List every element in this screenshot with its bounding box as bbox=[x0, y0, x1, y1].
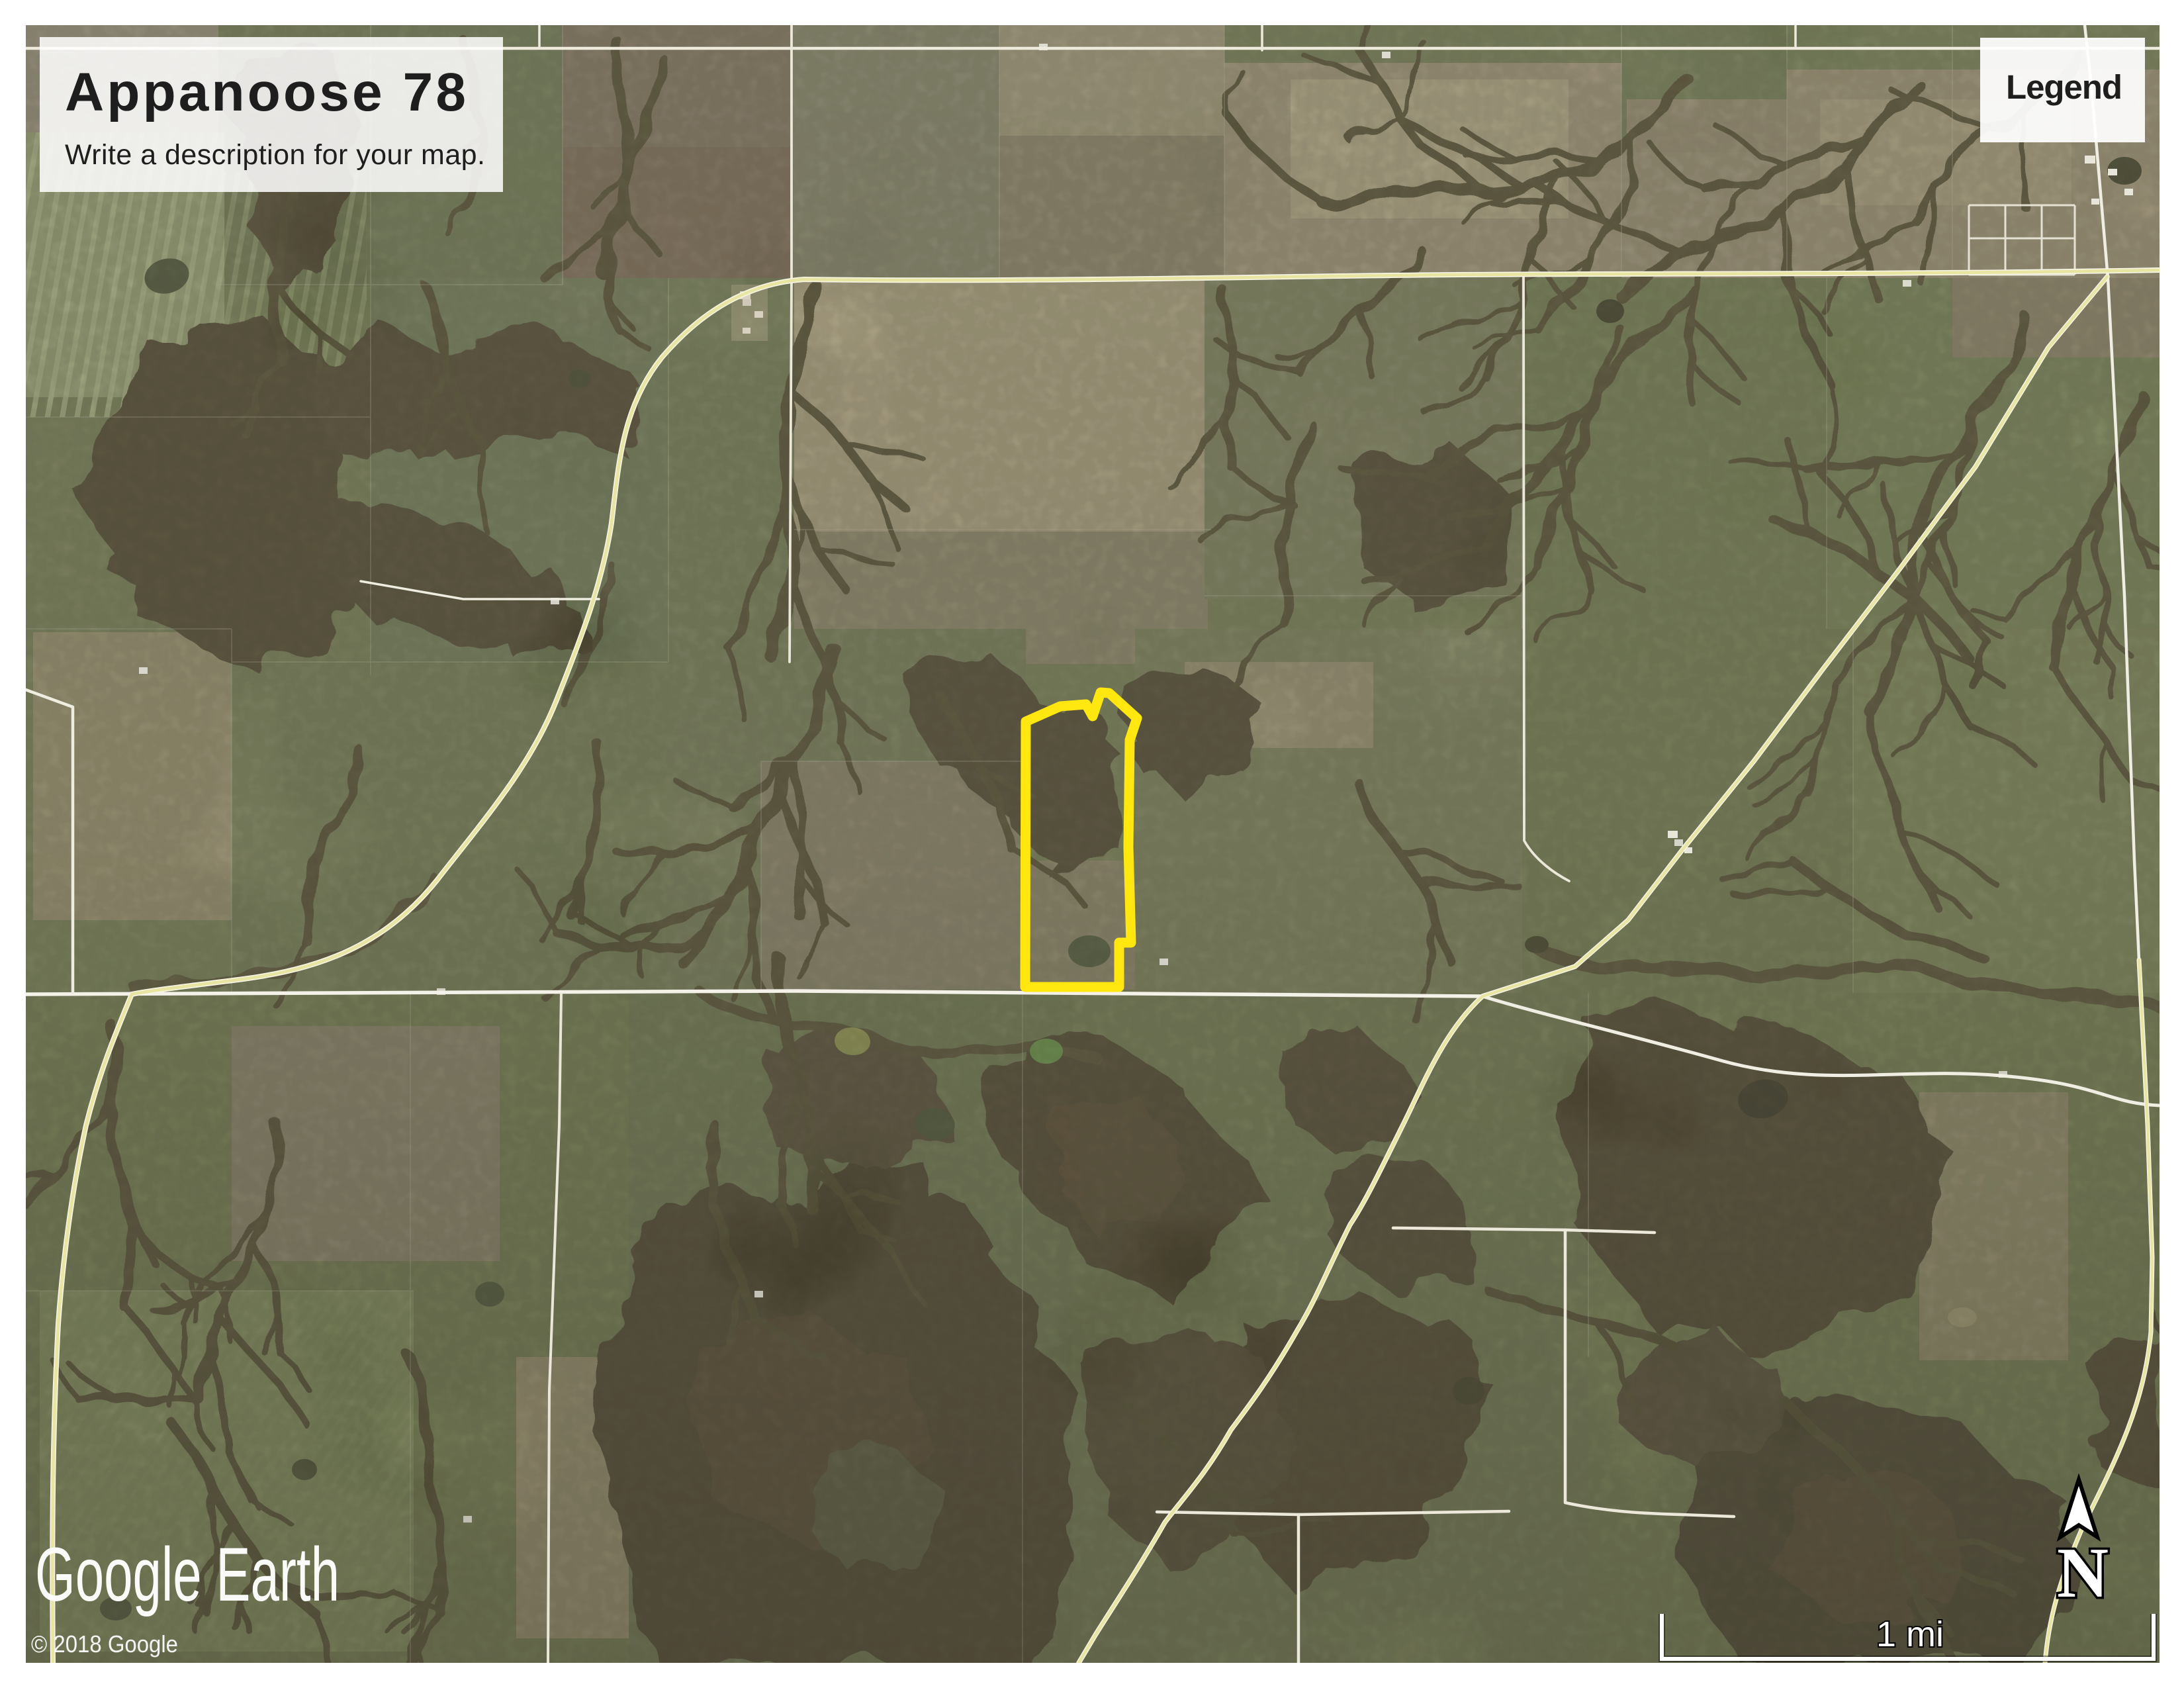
svg-text:Legend: Legend bbox=[2006, 68, 2122, 106]
svg-text:Google Earth: Google Earth bbox=[35, 1532, 340, 1617]
svg-text:N: N bbox=[2057, 1534, 2109, 1613]
svg-text:1 mi: 1 mi bbox=[1876, 1615, 1944, 1654]
svg-text:Write a description for your m: Write a description for your map. bbox=[65, 139, 485, 171]
svg-text:Appanoose 78: Appanoose 78 bbox=[65, 62, 466, 122]
svg-text:© 2018 Google: © 2018 Google bbox=[31, 1630, 178, 1658]
